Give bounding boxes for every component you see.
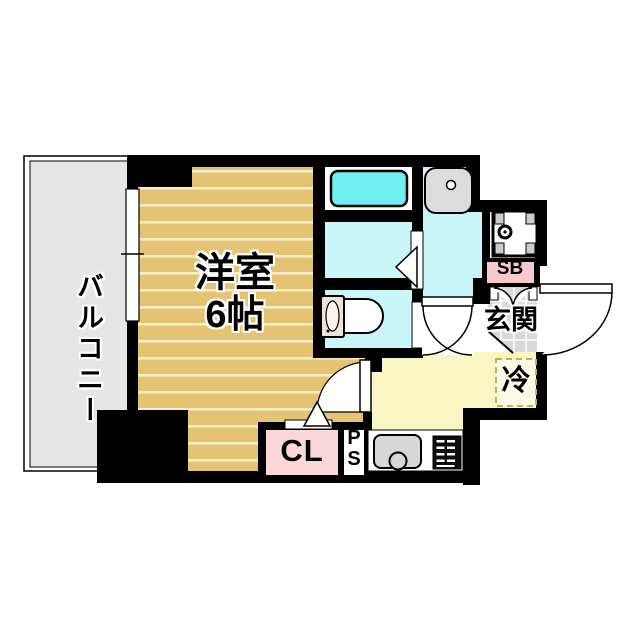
shoebox-label: SB — [482, 259, 538, 279]
bathtub — [331, 171, 407, 206]
pipe-space-s: S — [341, 449, 367, 470]
room-size: 6帖 — [150, 294, 320, 336]
washing-machine-pan — [493, 211, 537, 256]
entrance-label: 玄関 — [473, 306, 549, 334]
room-label: 洋室 6帖 — [150, 252, 320, 336]
toilet-door — [412, 302, 423, 348]
pipe-space-p: P — [341, 428, 367, 449]
kitchen-counter — [368, 430, 463, 471]
balcony-window — [126, 189, 139, 321]
kitchen-faucet — [390, 453, 407, 470]
stove — [433, 436, 461, 469]
front-door — [540, 284, 612, 355]
balcony-label: バルコニー — [58, 224, 102, 474]
closet-label: CL — [264, 435, 340, 468]
toilet — [321, 296, 383, 337]
pipe-space-label: P S — [341, 428, 367, 470]
wash-basin — [425, 168, 472, 213]
room-name: 洋室 — [150, 252, 320, 294]
hall-doors — [422, 297, 473, 355]
floorplan: バルコニー 洋室 6帖 玄関 SB 冷 CL P S — [0, 0, 640, 640]
refrigerator-label: 冷 — [496, 366, 536, 396]
